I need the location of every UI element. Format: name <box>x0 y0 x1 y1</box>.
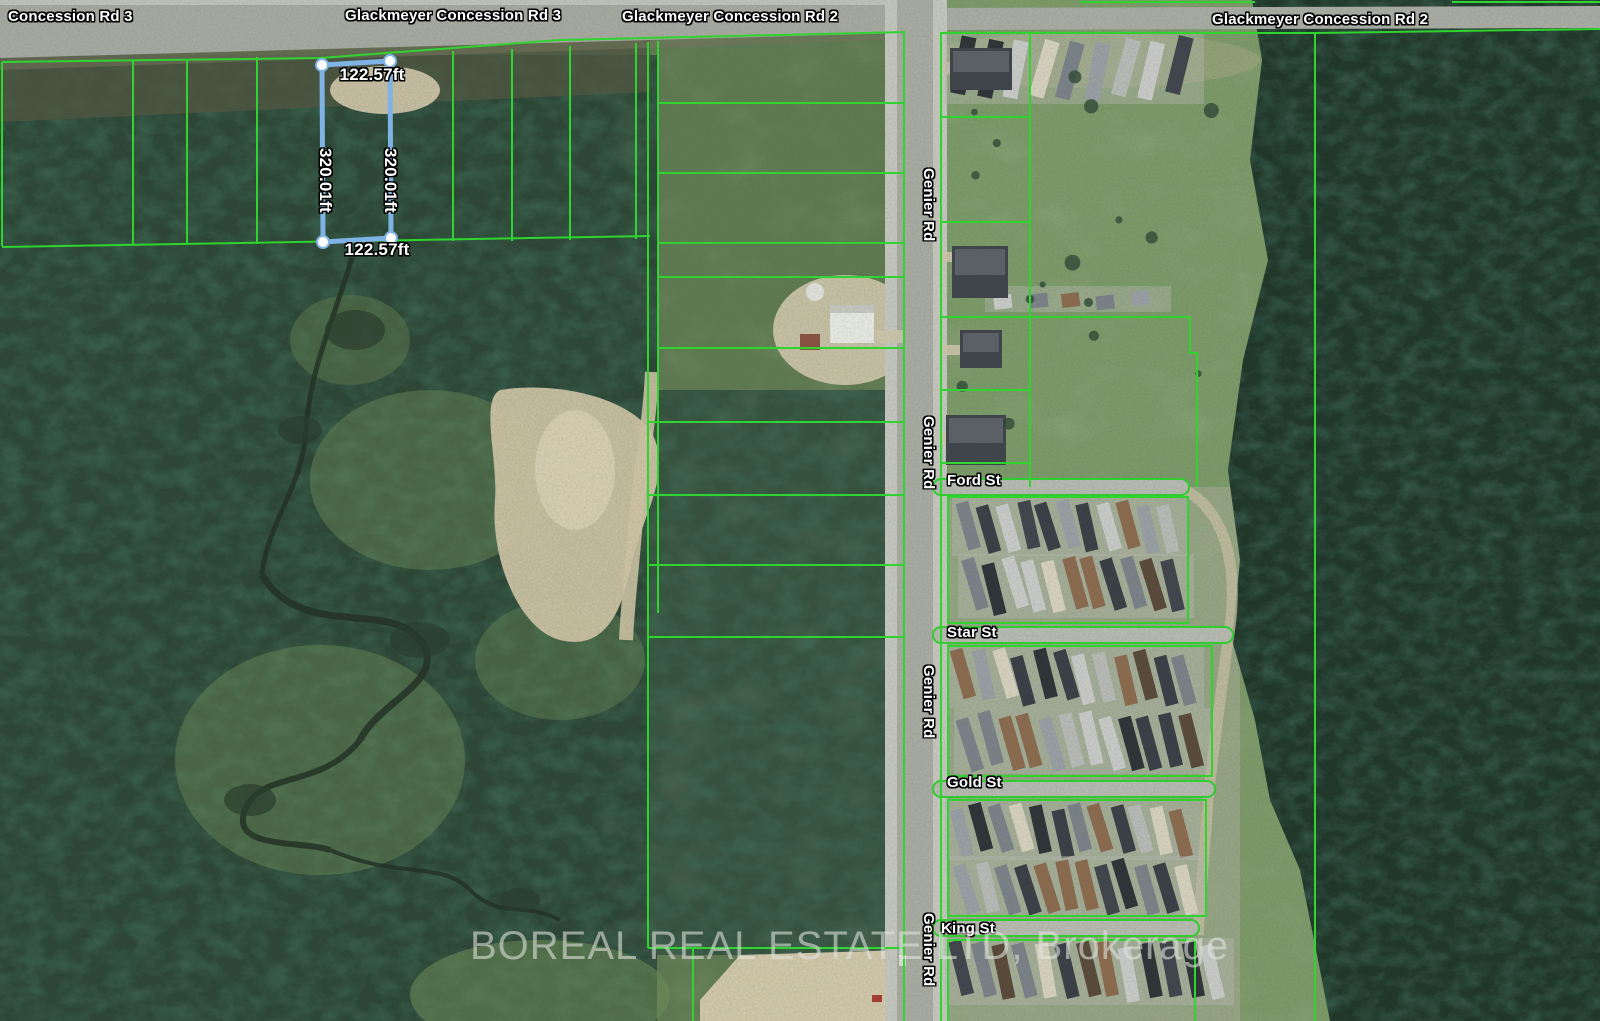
satellite-map-view[interactable]: Concession Rd 3 Glackmeyer Concession Rd… <box>0 0 1600 1021</box>
measure-handle[interactable] <box>317 236 329 248</box>
satellite-canvas[interactable] <box>0 0 1600 1021</box>
measure-handle[interactable] <box>316 59 328 71</box>
street-label-gold-st: Gold St <box>947 775 1002 790</box>
road-label-glackmeyer-concession-rd-2: Glackmeyer Concession Rd 2 <box>622 9 838 24</box>
measurement-label-top: 122.57ft <box>340 66 405 83</box>
road-label-genier-rd: Genier Rd <box>921 168 936 241</box>
road-label-glackmeyer-concession-rd-2: Glackmeyer Concession Rd 2 <box>1212 12 1428 27</box>
road-label-concession-rd-3: Concession Rd 3 <box>8 9 133 24</box>
road-label-glackmeyer-concession-rd-3: Glackmeyer Concession Rd 3 <box>345 8 561 23</box>
road-label-genier-rd: Genier Rd <box>921 665 936 738</box>
measurement-label-bottom: 122.57ft <box>345 241 410 258</box>
street-label-ford-st: Ford St <box>947 473 1001 488</box>
brokerage-watermark: BOREAL REAL ESTATE LTD, Brokerage <box>470 924 1229 969</box>
measurement-label-right: 320.01ft <box>382 148 399 213</box>
street-label-star-st: Star St <box>947 625 997 640</box>
road-label-genier-rd: Genier Rd <box>921 416 936 489</box>
measurement-label-left: 320.01ft <box>317 148 334 213</box>
